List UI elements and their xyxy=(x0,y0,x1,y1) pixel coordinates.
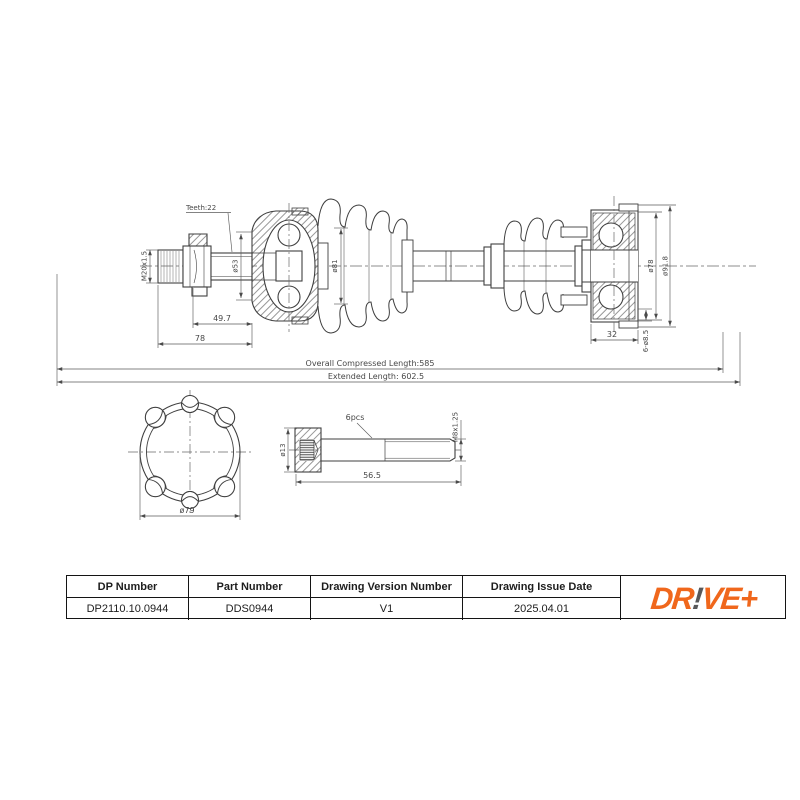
flange-bearing-ball-bottom xyxy=(599,285,623,309)
teeth-count-label: Teeth:22 xyxy=(185,204,216,212)
dp-number-header: DP Number xyxy=(67,576,189,598)
bolt-head-dia-label: ø13 xyxy=(279,443,287,456)
extended-length-label: Extended Length: 602.5 xyxy=(328,372,424,381)
hex-nut-section xyxy=(183,234,211,296)
bolt-thread-spec-label: M8x1.25 xyxy=(452,412,460,442)
flange-inner-dia-label: ø78 xyxy=(647,259,655,272)
technical-drawing: Teeth:22 M20x1.5 ø53 ø81 49.7 78 ø78 ø91… xyxy=(0,0,800,560)
boot-dia-label: ø81 xyxy=(331,259,339,272)
flange-bolt-view: 6pcs ø13 M8x1.25 56.5 xyxy=(279,412,466,486)
drawing-version-header: Drawing Version Number xyxy=(311,576,463,598)
inner-joint-flange xyxy=(575,196,638,336)
part-number-header: Part Number xyxy=(189,576,311,598)
drawing-page: Teeth:22 M20x1.5 ø53 ø81 49.7 78 ø78 ø91… xyxy=(0,0,800,800)
issue-date-value: 2025.04.01 xyxy=(463,598,621,620)
driveshaft-main-view: Teeth:22 M20x1.5 ø53 ø81 49.7 78 ø78 ø91… xyxy=(57,196,756,386)
cv-joint-bell xyxy=(252,203,328,332)
brand-logo-cell: DR!VE+ xyxy=(621,576,787,620)
section-dia-label: ø79 xyxy=(179,506,194,515)
logo-suffix: VE+ xyxy=(700,581,759,616)
bolt-quantity-label: 6pcs xyxy=(346,413,365,422)
shaft-section-view: ø79 xyxy=(128,390,252,520)
flange-width-label: 32 xyxy=(607,330,617,339)
compressed-length-label: Overall Compressed Length:585 xyxy=(306,359,435,368)
dp-number-value: DP2110.10.0944 xyxy=(67,598,189,620)
threaded-stub xyxy=(158,250,183,283)
thread-spec-label: M20x1.5 xyxy=(141,251,149,281)
stub-length-label: 78 xyxy=(195,334,205,343)
bolt-holes-label: 6-ø8.5 xyxy=(642,330,650,352)
part-number-value: DDS0944 xyxy=(189,598,311,620)
spline-length-label: 49.7 xyxy=(213,314,231,323)
title-block: DP Number Part Number Drawing Version Nu… xyxy=(66,575,786,619)
flange-bearing-ball-top xyxy=(599,223,623,247)
issue-date-header: Drawing Issue Date xyxy=(463,576,621,598)
bolt-length-label: 56.5 xyxy=(363,471,381,480)
bell-inner-dia-label: ø53 xyxy=(232,259,240,272)
drawing-version-value: V1 xyxy=(311,598,463,620)
drive-plus-logo: DR!VE+ xyxy=(650,583,759,614)
logo-prefix: DR xyxy=(649,581,694,616)
flange-outer-dia-label: ø91.8 xyxy=(662,256,670,276)
